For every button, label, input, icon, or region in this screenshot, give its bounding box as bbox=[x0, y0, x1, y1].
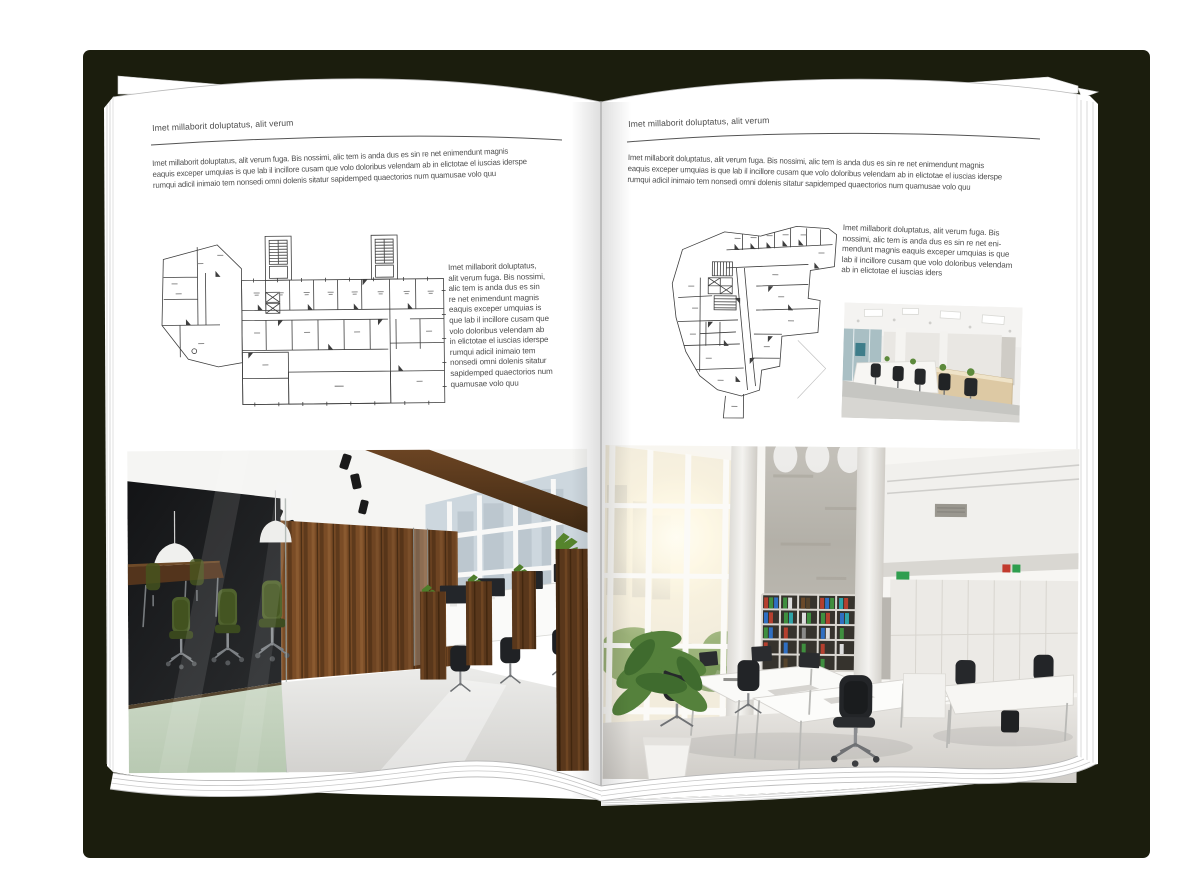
office-photo-small bbox=[841, 303, 1022, 423]
plan-room-labels bbox=[171, 253, 434, 389]
corner-planter bbox=[556, 533, 589, 771]
floor-plan-left bbox=[157, 230, 451, 418]
right-page-side-text: Imet millaborit doluptatus, alit verum f… bbox=[841, 223, 1031, 282]
office-photo-right bbox=[603, 445, 1080, 783]
waste-bin bbox=[1001, 710, 1019, 732]
right-page-header: Imet millaborit doluptatus, alit verum bbox=[628, 115, 770, 129]
first-aid-sign bbox=[1002, 564, 1010, 572]
book-mockup: Imet millaborit doluptatus, alit verum I… bbox=[0, 0, 1200, 891]
exit-sign bbox=[896, 571, 909, 579]
mezzanine-balcony bbox=[876, 447, 1079, 579]
left-page-intro: Imet millaborit doluptatus, alit verum f… bbox=[152, 143, 570, 191]
floor-plan-right bbox=[647, 221, 843, 422]
right-page-intro: Imet millaborit doluptatus, alit verum f… bbox=[627, 152, 1045, 194]
right-header-rule bbox=[626, 130, 1042, 148]
left-page-stack-edge bbox=[104, 97, 113, 772]
vent-grille bbox=[935, 504, 967, 517]
round-column bbox=[853, 447, 885, 697]
ceiling-downlights bbox=[773, 445, 861, 473]
left-page-side-text: Imet millaborit doluptatus, alit verum f… bbox=[448, 260, 579, 390]
office-photo-left bbox=[127, 449, 589, 773]
left-page-header: Imet millaborit doluptatus, alit verum bbox=[152, 118, 294, 133]
doorway bbox=[881, 597, 891, 679]
